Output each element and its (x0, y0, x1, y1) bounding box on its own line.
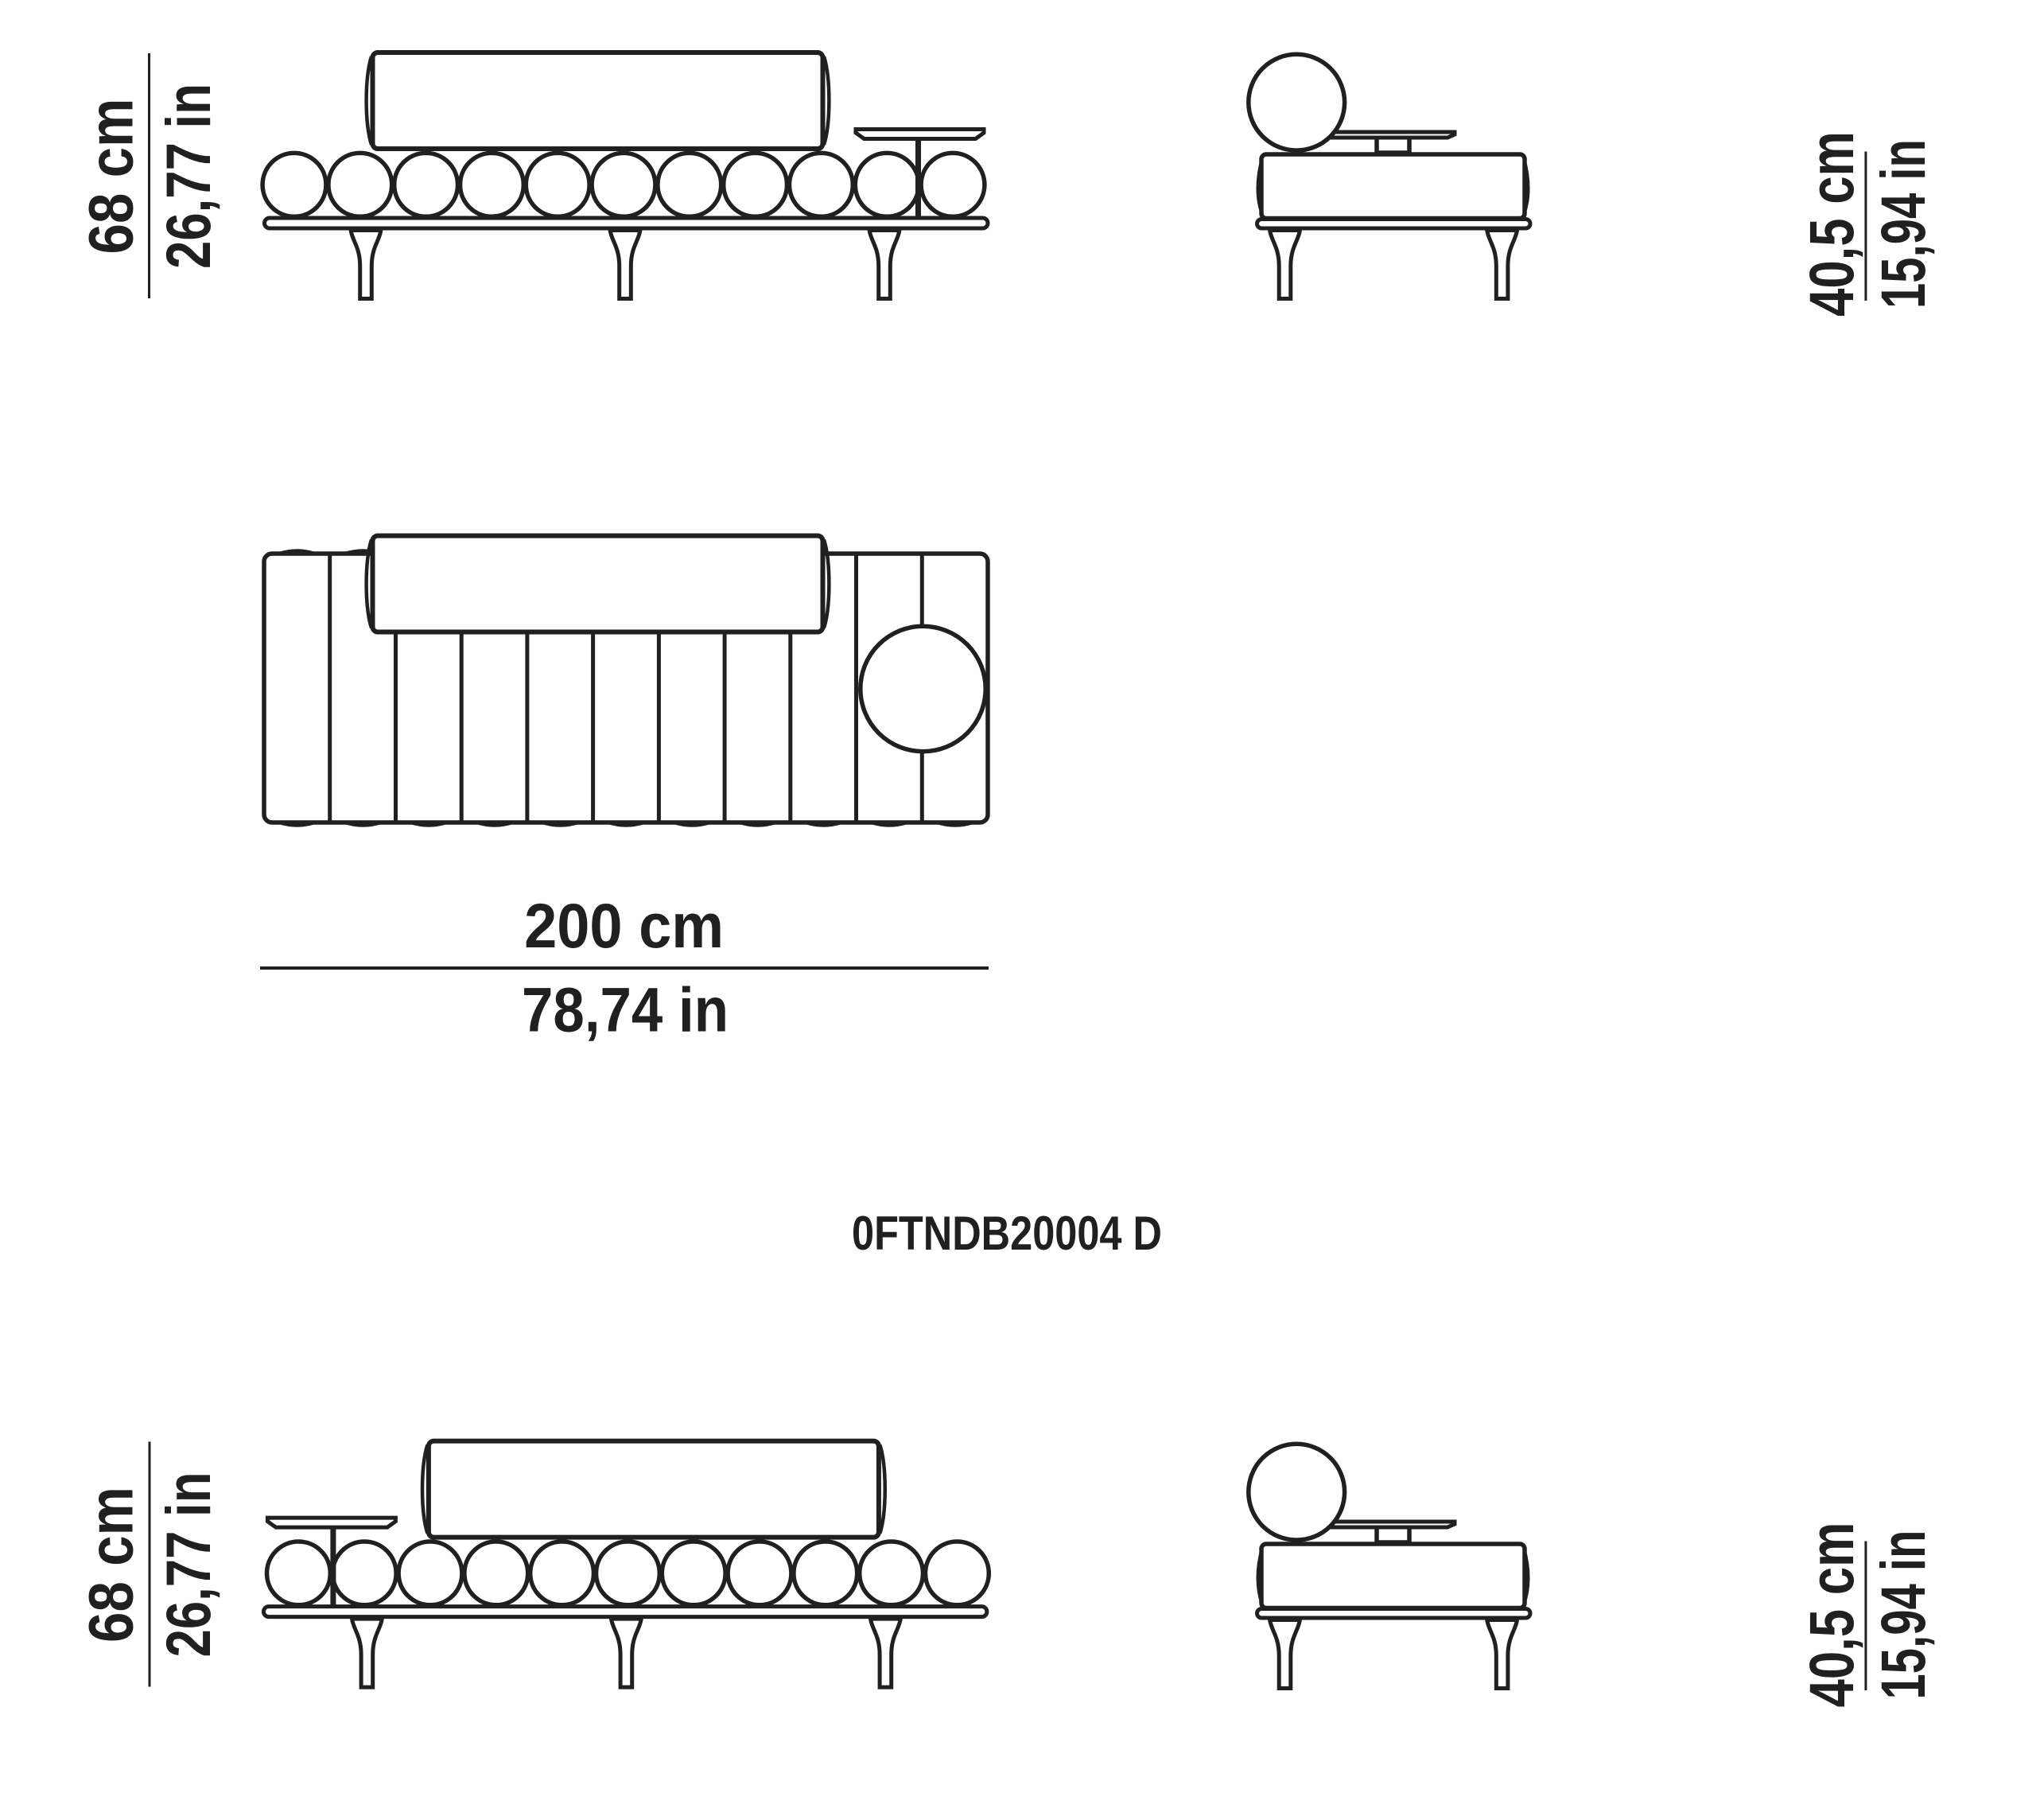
svg-text:68 cm: 68 cm (76, 99, 146, 255)
svg-text:78,74 in: 78,74 in (522, 975, 729, 1045)
svg-text:26,77 in: 26,77 in (153, 84, 223, 269)
svg-text:40,5 cm: 40,5 cm (1797, 1522, 1867, 1708)
svg-text:40,5 cm: 40,5 cm (1797, 131, 1867, 317)
svg-text:15,94 in: 15,94 in (1868, 139, 1938, 309)
svg-text:68 cm: 68 cm (76, 1487, 146, 1643)
svg-text:200 cm: 200 cm (524, 891, 724, 961)
svg-text:15,94 in: 15,94 in (1868, 1530, 1938, 1700)
svg-text:26,77 in: 26,77 in (153, 1472, 223, 1658)
svg-text:0FTNDB20004 D: 0FTNDB20004 D (852, 1206, 1162, 1260)
